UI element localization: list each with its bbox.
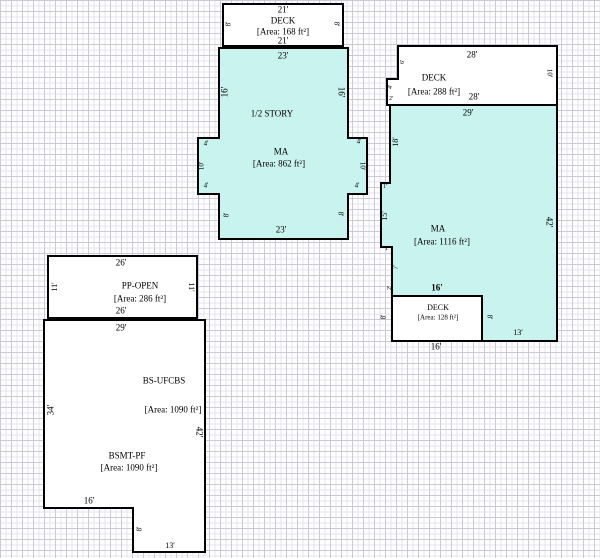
room-label: DECK — [422, 74, 447, 83]
area-label: [Area: 1090 ft²] — [145, 406, 202, 415]
dim-deck-cut-bottom: 16' — [431, 343, 442, 352]
room-label: DECK — [427, 304, 449, 312]
dim-halfstory-bottom: 23' — [276, 226, 287, 235]
dim-deck-cut-right: 8' — [486, 315, 493, 320]
dim-halfstory-right: 16' — [337, 87, 346, 98]
dim-basement-left: 34' — [47, 405, 56, 416]
dim-right-bump-top: 4' — [357, 139, 362, 146]
dim-right-deck-notch-a: 6' — [400, 60, 406, 64]
dim-right-ma-step-1: 1' — [383, 184, 387, 190]
dim-right-deck-right: 10' — [546, 69, 553, 77]
dim-ppopen-top: 26' — [116, 259, 127, 268]
dim-right-ma-left-2: 15' — [381, 211, 389, 220]
dim-left-bump-side: 10' — [199, 162, 206, 170]
dim-right-ma-bottom: 13' — [513, 329, 522, 337]
dim-ppopen-left: 11' — [51, 282, 59, 291]
dim-top-deck-top: 21' — [278, 6, 289, 15]
dim-top-deck-left: 8' — [226, 22, 233, 27]
room-label: MA — [274, 148, 289, 157]
dim-basement-right: 42' — [195, 427, 204, 438]
dim-right-ma-right: 42' — [545, 217, 554, 228]
dim-right-deck-notch-c: 2' — [389, 96, 393, 102]
room-label: DECK — [271, 17, 296, 26]
sketch-shapes-layer — [0, 0, 600, 558]
dim-basement-step-top: 16' — [84, 497, 95, 506]
dim-right-bump-side: 10' — [359, 162, 366, 170]
dim-right-ma-step-2: 1' — [385, 246, 389, 252]
dim-top-deck-right: 8' — [333, 22, 340, 27]
dim-right-deck-bottom: 28' — [469, 93, 480, 102]
dim-left-bump-top: 4' — [204, 141, 209, 148]
dim-halfstory-left: 16' — [221, 87, 230, 98]
dim-right-ma-left-4: 2' — [387, 286, 393, 290]
half-story-outline — [198, 48, 367, 239]
room-label: BS-UFCBS — [143, 377, 186, 386]
dim-right-ma-top: 29' — [463, 109, 474, 118]
dim-right-ma-left-1: 18' — [392, 137, 400, 146]
dim-right-deck-notch-b: 4' — [388, 85, 394, 89]
room-label: PP-OPEN — [122, 282, 159, 291]
room-label: BSMT-PF — [109, 452, 146, 461]
dim-right-ma-left-3: 7' — [393, 265, 400, 270]
dim-left-bump-bottom: 4' — [204, 183, 209, 190]
dim-halfstory-top: 23' — [278, 52, 289, 61]
dim-right-bump-bottom: 4' — [355, 183, 360, 190]
basement-outline — [44, 320, 205, 552]
area-label: [Area: 128 ft²] — [418, 315, 459, 322]
dim-halfstory-right-lower: 8' — [337, 212, 344, 217]
area-label: [Area: 286 ft²] — [114, 295, 166, 304]
area-label: [Area: 862 ft²] — [253, 160, 305, 169]
dim-top-deck-bottom: 21' — [278, 37, 289, 46]
dim-deck-cut-left: 8' — [381, 315, 388, 320]
dim-ppopen-bottom: 26' — [116, 307, 127, 316]
room-label: MA — [431, 225, 446, 234]
sketch-canvas: 21'DECK[Area: 168 ft²]21'8'8'23'16'16'1/… — [0, 0, 600, 558]
area-label: [Area: 1090 ft²] — [101, 464, 158, 473]
dim-deck-cut-top: 16' — [431, 284, 443, 293]
area-label: [Area: 1116 ft²] — [414, 238, 470, 247]
dim-basement-top: 29' — [116, 324, 127, 333]
dim-basement-step-side: 8' — [137, 527, 144, 532]
room-label: 1/2 STORY — [251, 110, 294, 119]
dim-basement-bottom: 13' — [165, 542, 174, 550]
dim-right-deck-top: 28' — [467, 51, 478, 60]
dim-halfstory-left-lower: 8' — [224, 213, 231, 218]
area-label: [Area: 288 ft²] — [408, 88, 460, 97]
dim-ppopen-right: 11' — [187, 282, 195, 291]
